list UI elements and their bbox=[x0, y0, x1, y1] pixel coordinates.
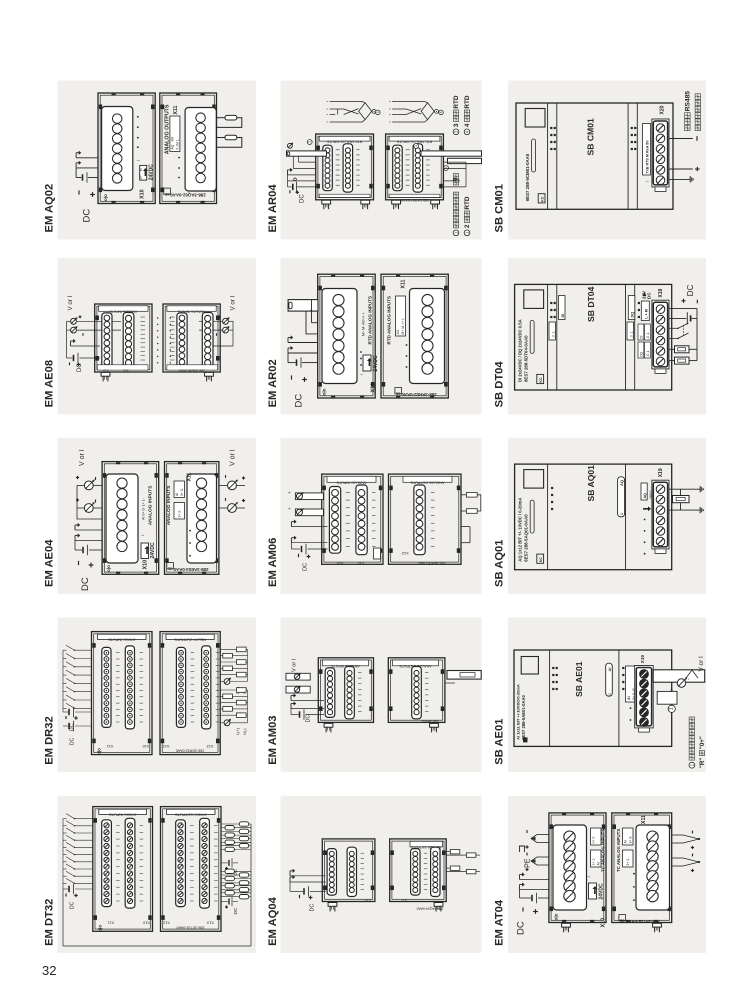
svg-text:↓: ↓ bbox=[136, 159, 142, 162]
svg-text:o|o: o|o bbox=[97, 748, 102, 755]
svg-text:EM AM03: EM AM03 bbox=[267, 715, 279, 764]
svg-text:X10: X10 bbox=[143, 921, 150, 925]
svg-text:1: 1 bbox=[669, 707, 675, 710]
svg-text:↓: ↓ bbox=[359, 373, 365, 376]
svg-text:X20: X20 bbox=[660, 105, 666, 114]
svg-text:CE: CE bbox=[395, 392, 400, 396]
svg-text:3+ 3-: 3+ 3- bbox=[628, 836, 632, 844]
svg-text:0 1M 1: 0 1M 1 bbox=[175, 139, 179, 149]
svg-text:EM AR02: EM AR02 bbox=[267, 359, 279, 407]
svg-text:EM AR04: EM AR04 bbox=[267, 184, 279, 233]
svg-text:KC: KC bbox=[541, 196, 545, 202]
svg-text:DC: DC bbox=[647, 292, 652, 299]
svg-text:V or I: V or I bbox=[698, 656, 705, 671]
svg-text:"R": "R" bbox=[699, 758, 706, 768]
svg-text:RTD ANALOG INPUTS: RTD ANALOG INPUTS bbox=[387, 296, 392, 345]
svg-text:X11: X11 bbox=[401, 279, 407, 288]
svg-text:o|o: o|o bbox=[554, 913, 559, 920]
svg-text:TC ANALOG INPUTS: TC ANALOG INPUTS bbox=[616, 829, 621, 872]
svg-text:DC: DC bbox=[686, 284, 695, 296]
svg-text:RTD: RTD bbox=[464, 95, 471, 109]
svg-text:DC: DC bbox=[310, 904, 316, 912]
svg-text:L+: L+ bbox=[139, 175, 143, 179]
svg-text:EM DT32: EM DT32 bbox=[44, 899, 56, 946]
svg-text:.0 .1: .0 .1 bbox=[646, 332, 650, 338]
svg-text:DC: DC bbox=[70, 737, 76, 745]
svg-text:AI: AI bbox=[624, 840, 628, 843]
svg-text:EM AE04: EM AE04 bbox=[44, 539, 56, 587]
svg-text:KC: KC bbox=[539, 377, 543, 383]
svg-text:1+ 1-: 1+ 1- bbox=[592, 858, 596, 866]
svg-text:X13: X13 bbox=[207, 744, 214, 748]
svg-text:SB DT04: SB DT04 bbox=[586, 286, 596, 322]
svg-text:V or I: V or I bbox=[67, 295, 74, 310]
svg-text:PE: PE bbox=[523, 858, 532, 868]
svg-text:SB CM01: SB CM01 bbox=[586, 118, 596, 155]
svg-text:SB AQ01: SB AQ01 bbox=[586, 465, 596, 502]
svg-text:1: 1 bbox=[414, 145, 418, 147]
svg-text:32: 32 bbox=[42, 963, 56, 978]
svg-text:X10: X10 bbox=[140, 189, 146, 199]
svg-text:X10: X10 bbox=[371, 383, 377, 393]
svg-text:X11: X11 bbox=[108, 921, 114, 925]
svg-text:6ES7 288-5CM01-0AA0: 6ES7 288-5CM01-0AA0 bbox=[525, 153, 530, 201]
svg-text:AQ: AQ bbox=[643, 493, 647, 499]
svg-text:RELAY OUTPUTS: RELAY OUTPUTS bbox=[174, 638, 206, 642]
svg-text:X10: X10 bbox=[365, 898, 371, 902]
svg-text:AQ: AQ bbox=[619, 480, 624, 486]
svg-text:V or I: V or I bbox=[230, 295, 237, 310]
svg-text:EM AE08: EM AE08 bbox=[44, 360, 56, 407]
svg-text:CE: CE bbox=[619, 919, 624, 923]
svg-text:↓: ↓ bbox=[586, 875, 592, 878]
svg-text:↓: ↓ bbox=[140, 534, 146, 537]
svg-text:2: 2 bbox=[464, 224, 471, 228]
svg-text:V or I: V or I bbox=[230, 449, 237, 466]
svg-text:N(-): N(-) bbox=[242, 728, 247, 736]
svg-text:X19: X19 bbox=[658, 288, 664, 297]
svg-text:SB CM01: SB CM01 bbox=[494, 184, 506, 233]
svg-text:o|o: o|o bbox=[98, 925, 103, 932]
svg-text:1: 1 bbox=[308, 141, 312, 143]
svg-text:o|o: o|o bbox=[106, 565, 111, 572]
svg-text:X12: X12 bbox=[401, 551, 409, 556]
svg-text:6ES7 288-5AQ01-0AA0: 6ES7 288-5AQ01-0AA0 bbox=[524, 514, 529, 562]
svg-text:X11: X11 bbox=[107, 744, 113, 748]
svg-text:6ES7 288-5DT04-0AA0: 6ES7 288-5DT04-0AA0 bbox=[524, 335, 529, 382]
svg-text:288-3DT32-0AA0: 288-3DT32-0AA0 bbox=[177, 925, 205, 929]
svg-text:DQ: DQ bbox=[640, 351, 644, 356]
svg-text:X10: X10 bbox=[337, 561, 344, 565]
svg-text:288-3AE04-0AA0: 288-3AE04-0AA0 bbox=[173, 567, 208, 572]
svg-text:24VDC INPUTS: 24VDC INPUTS bbox=[108, 638, 136, 642]
svg-text:DI: DI bbox=[561, 314, 565, 318]
svg-text:DI 2x24VDC / DQ 2x24VDC 0.5A: DI 2x24VDC / DQ 2x24VDC 0.5A bbox=[518, 319, 523, 382]
svg-text:2+ 2-: 2+ 2- bbox=[626, 858, 630, 866]
svg-text:RS485: RS485 bbox=[685, 91, 692, 111]
svg-text:288-3AQ04-0AA0: 288-3AQ04-0AA0 bbox=[417, 907, 444, 911]
svg-text:2+ 2-: 2+ 2- bbox=[178, 510, 182, 518]
svg-text:SB AE01: SB AE01 bbox=[574, 661, 584, 697]
svg-text:DC: DC bbox=[82, 209, 93, 223]
svg-text:+: + bbox=[287, 491, 292, 494]
svg-text:V or I: V or I bbox=[79, 449, 86, 466]
svg-text:EM AM06: EM AM06 bbox=[267, 538, 279, 587]
svg-text:X11: X11 bbox=[173, 105, 179, 114]
svg-text:24VDC: 24VDC bbox=[373, 355, 379, 372]
svg-text:X11: X11 bbox=[123, 369, 129, 373]
svg-text:DC: DC bbox=[70, 901, 76, 909]
svg-text:AI 0+ 0- 1+ 1-: AI 0+ 0- 1+ 1- bbox=[142, 497, 146, 520]
svg-text:SB DT04: SB DT04 bbox=[494, 361, 506, 408]
svg-text:288-3DR32-0AA0: 288-3DR32-0AA0 bbox=[176, 749, 204, 753]
svg-text:.0 .1: .0 .1 bbox=[551, 331, 555, 338]
svg-text:RTD ANALOG INPUTS: RTD ANALOG INPUTS bbox=[368, 296, 373, 345]
svg-text:SB AE01: SB AE01 bbox=[494, 719, 506, 765]
svg-text:AQ: AQ bbox=[171, 144, 175, 149]
svg-text:288-3AM06-0AA0: 288-3AM06-0AA0 bbox=[418, 561, 447, 565]
svg-text:EM AQ04: EM AQ04 bbox=[267, 896, 279, 945]
svg-text:288-3AQ02-0AA0: 288-3AQ02-0AA0 bbox=[170, 193, 206, 198]
svg-text:CE: CE bbox=[167, 567, 172, 571]
svg-text:DC: DC bbox=[80, 577, 91, 591]
svg-text:AI: AI bbox=[627, 696, 631, 700]
svg-text:↓: ↓ bbox=[645, 180, 651, 183]
svg-text:AQ 1x12 BIT +/- 10VDC / 0-20mA: AQ 1x12 BIT +/- 10VDC / 0-20mA bbox=[518, 498, 523, 562]
svg-text:X11: X11 bbox=[358, 561, 364, 565]
svg-text:X11: X11 bbox=[401, 898, 407, 902]
svg-text:EM AQ02: EM AQ02 bbox=[44, 184, 56, 233]
svg-text:DC: DC bbox=[233, 907, 239, 914]
svg-text:.0 .1: .0 .1 bbox=[646, 350, 650, 356]
svg-text:X10: X10 bbox=[143, 744, 150, 748]
svg-text:RTD ANALOG INPUTS: RTD ANALOG INPUTS bbox=[326, 139, 362, 143]
svg-text:L + M: L + M bbox=[645, 309, 649, 319]
svg-text:RTD: RTD bbox=[464, 196, 471, 210]
svg-text:V or I: V or I bbox=[292, 658, 298, 672]
svg-text:ANALOG OUTPUTS: ANALOG OUTPUTS bbox=[164, 104, 170, 154]
svg-text:M+ M- I+ I-: M+ M- I+ I- bbox=[401, 318, 405, 335]
svg-text:3: 3 bbox=[453, 123, 460, 127]
svg-text:DC: DC bbox=[233, 868, 239, 875]
svg-text:DC: DC bbox=[306, 715, 312, 723]
svg-text:X12: X12 bbox=[163, 921, 170, 925]
svg-text:RTD ANALOG INPUTS: RTD ANALOG INPUTS bbox=[396, 139, 432, 143]
svg-text:24VDC: 24VDC bbox=[148, 164, 154, 181]
svg-text:DC: DC bbox=[300, 194, 306, 203]
svg-text:AI: AI bbox=[607, 668, 612, 672]
svg-text:.0 .1: .0 .1 bbox=[629, 331, 633, 338]
svg-text:6ES7 288-5AE01-0AA0: 6ES7 288-5AE01-0AA0 bbox=[521, 695, 526, 740]
svg-text:0+ 0-: 0+ 0- bbox=[592, 836, 596, 844]
svg-text:DC: DC bbox=[294, 394, 305, 408]
svg-text:TC ANALOG INPUTS: TC ANALOG INPUTS bbox=[600, 829, 605, 872]
svg-text:ANALOG INPUTS: ANALOG INPUTS bbox=[148, 485, 154, 526]
svg-text:DQ: DQ bbox=[631, 312, 635, 318]
svg-text:KC: KC bbox=[539, 557, 543, 563]
svg-text:ANALOG INPUTS: ANALOG INPUTS bbox=[166, 485, 172, 526]
svg-text:AI1: AI1 bbox=[396, 329, 400, 334]
svg-text:DC: DC bbox=[70, 723, 76, 731]
svg-text:3+ 3-: 3+ 3- bbox=[180, 488, 184, 496]
svg-text:"0+": "0+" bbox=[699, 736, 706, 749]
svg-text:4: 4 bbox=[439, 111, 443, 113]
svg-text:X10: X10 bbox=[601, 918, 607, 928]
svg-text:24VDC INPUTS: 24VDC INPUTS bbox=[109, 813, 137, 817]
svg-text:TxB RTS M RxA 5V: TxB RTS M RxA 5V bbox=[646, 140, 650, 174]
svg-text:RTD: RTD bbox=[453, 95, 460, 109]
svg-text:DC: DC bbox=[77, 363, 83, 372]
svg-text:24VDC OUTPUTS: 24VDC OUTPUTS bbox=[175, 813, 207, 817]
svg-text:288-3AR02-0AA0: 288-3AR02-0AA0 bbox=[401, 392, 437, 397]
svg-text:0M: 0M bbox=[171, 137, 175, 142]
svg-text:M+ M- AI0 I+ I-: M+ M- AI0 I+ I- bbox=[362, 311, 366, 336]
svg-text:M: M bbox=[139, 168, 143, 171]
svg-text:EM AT04: EM AT04 bbox=[494, 899, 506, 946]
svg-text:o|o: o|o bbox=[322, 388, 327, 395]
svg-text:AI 1x11 BIT +/-10VDC/0-20mA: AI 1x11 BIT +/-10VDC/0-20mA bbox=[516, 684, 521, 740]
svg-text:4: 4 bbox=[464, 123, 471, 127]
svg-text:X12: X12 bbox=[163, 744, 170, 748]
svg-text:X10: X10 bbox=[143, 560, 149, 570]
svg-text:CE: CE bbox=[164, 192, 169, 196]
svg-text:24VDC: 24VDC bbox=[150, 542, 156, 559]
svg-text:3: 3 bbox=[376, 111, 380, 113]
svg-text:L(+): L(+) bbox=[235, 727, 240, 735]
svg-text:+: + bbox=[287, 507, 292, 510]
svg-text:DC: DC bbox=[516, 921, 527, 935]
svg-text:DC: DC bbox=[303, 563, 309, 571]
svg-text:24VDC: 24VDC bbox=[599, 883, 605, 900]
svg-text:SB AQ01: SB AQ01 bbox=[494, 540, 506, 587]
svg-text:ANALOG OUTPUTS: ANALOG OUTPUTS bbox=[410, 480, 445, 484]
svg-text:EM DR32: EM DR32 bbox=[44, 716, 56, 765]
svg-text:X19: X19 bbox=[640, 655, 645, 664]
svg-text:288-3AR04-0AA0: 288-3AR04-0AA0 bbox=[401, 198, 429, 202]
svg-text:X11: X11 bbox=[187, 472, 193, 481]
svg-text:288-3AM03: 288-3AM03 bbox=[421, 719, 438, 723]
svg-text:X11: X11 bbox=[641, 815, 647, 824]
svg-text:o|o: o|o bbox=[103, 194, 108, 201]
svg-text:AI: AI bbox=[175, 493, 179, 496]
svg-text:288-3AE08-0AA0: 288-3AE08-0AA0 bbox=[179, 369, 205, 373]
svg-text:ANALOG INPUTS: ANALOG INPUTS bbox=[336, 480, 366, 484]
svg-text:X19: X19 bbox=[658, 468, 664, 477]
svg-text:X13: X13 bbox=[207, 921, 214, 925]
svg-text:DI: DI bbox=[640, 335, 644, 338]
svg-text:+: + bbox=[670, 689, 676, 692]
